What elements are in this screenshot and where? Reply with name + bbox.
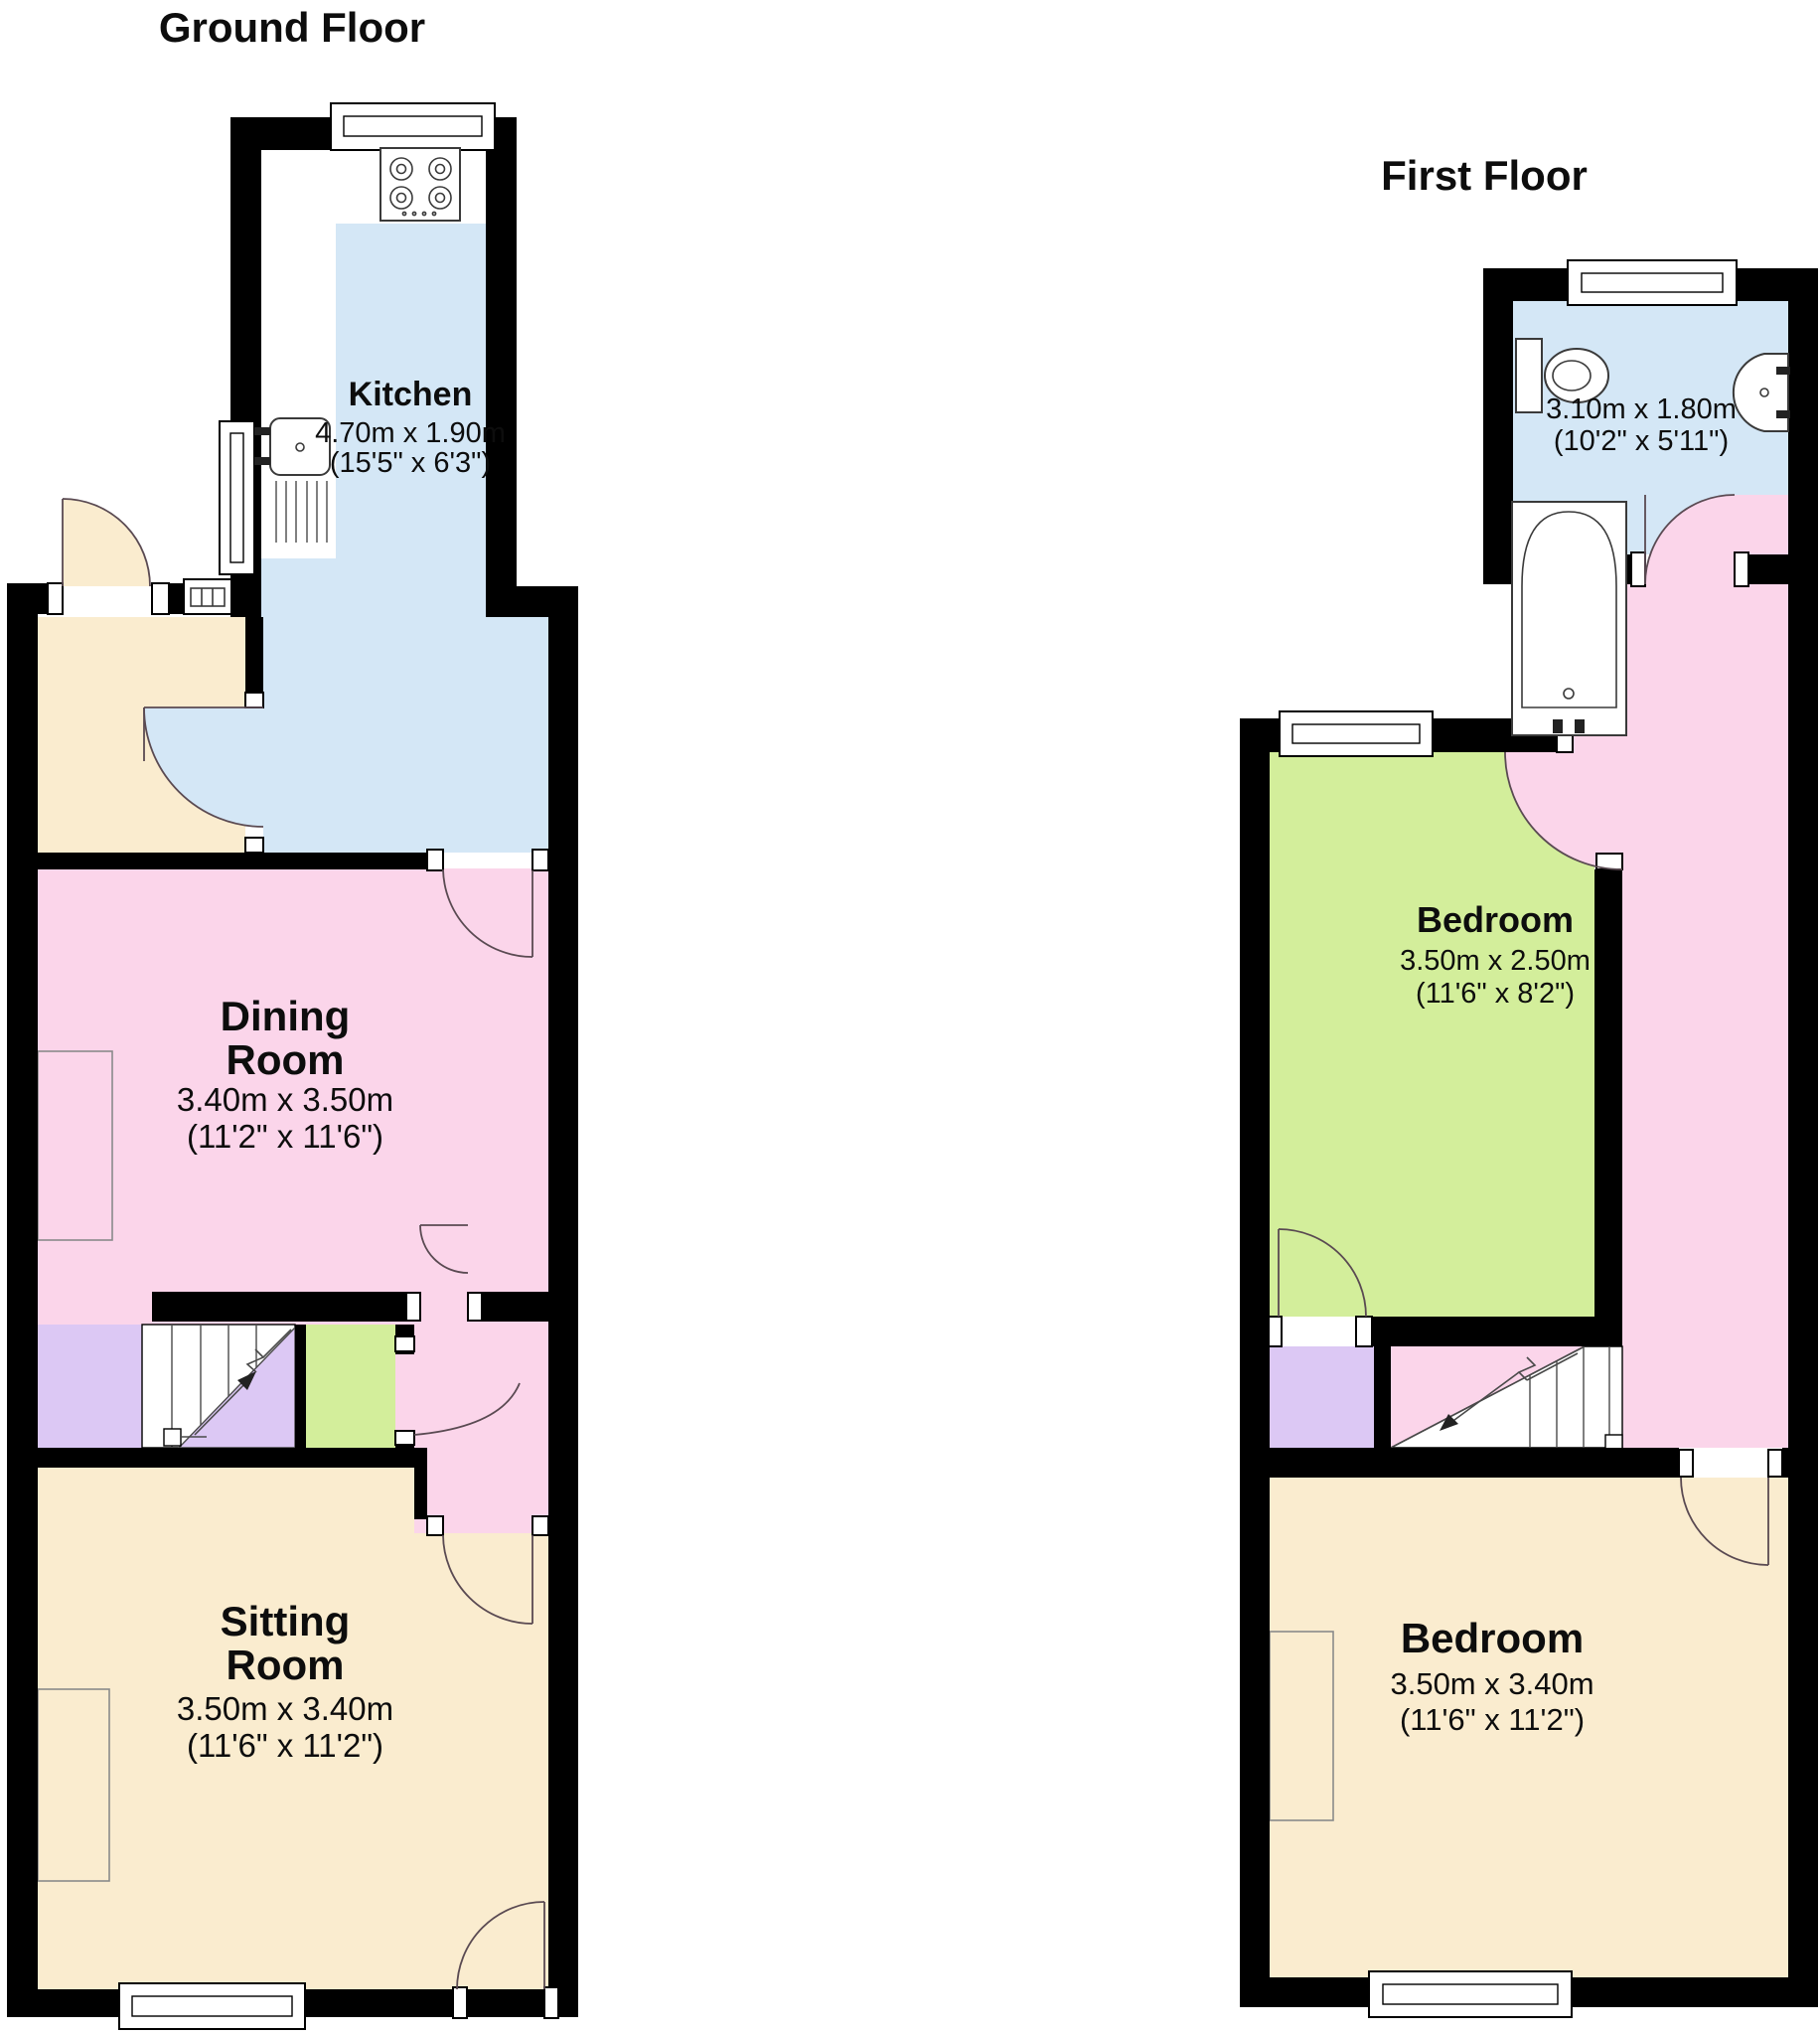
ground-floor-plan: Ground Floor Kitchen 4.70m x 1.90m (15'5… (7, 4, 578, 2029)
bathroom-label: 3.10m x 1.80m (10'2" x 5'11") (1546, 393, 1737, 457)
svg-text:(10'2" x 5'11"): (10'2" x 5'11") (1554, 425, 1729, 457)
landing-strip (1622, 752, 1788, 1448)
stairs-start-post (164, 1429, 181, 1446)
svg-text:(11'6" x 8'2"): (11'6" x 8'2") (1416, 978, 1575, 1010)
boiler-unit-icon (184, 579, 231, 614)
svg-text:(11'2" x 11'6"): (11'2" x 11'6") (187, 1118, 383, 1155)
kitchen-side-window (220, 421, 254, 574)
sitting-room-window (119, 1983, 305, 2029)
bedroom-front-label: Bedroom 3.50m x 3.40m (11'6" x 11'2") (1390, 1615, 1593, 1737)
svg-text:3.50m x 3.40m: 3.50m x 3.40m (177, 1690, 393, 1727)
first-floor-plan: First Floor 3.10m x 1.80m (10'2" x 5'11"… (1240, 152, 1818, 2017)
svg-text:Sitting: Sitting (221, 1598, 351, 1644)
svg-text:4.70m x 1.90m: 4.70m x 1.90m (315, 417, 506, 449)
first-floor-title: First Floor (1381, 152, 1588, 199)
svg-text:3.10m x 1.80m: 3.10m x 1.80m (1546, 393, 1737, 425)
stairs-ground (142, 1325, 295, 1448)
svg-text:Bedroom: Bedroom (1401, 1615, 1584, 1661)
floorplan-page: Ground Floor Kitchen 4.70m x 1.90m (15'5… (0, 0, 1820, 2035)
kitchen-rear-window (331, 103, 495, 150)
bedroom-rear-label: Bedroom 3.50m x 2.50m (11'6" x 8'2") (1400, 899, 1591, 1010)
drainer-icon (276, 481, 327, 543)
porch-door-swing (63, 499, 150, 586)
svg-text:Room: Room (227, 1036, 345, 1083)
floorplan-canvas: Ground Floor Kitchen 4.70m x 1.90m (15'5… (0, 0, 1820, 2035)
hob-icon (380, 148, 460, 221)
svg-text:(15'5" x 6'3"): (15'5" x 6'3") (330, 447, 491, 479)
stairs-lobby (38, 1325, 142, 1448)
svg-text:Dining: Dining (221, 993, 351, 1039)
svg-text:Bedroom: Bedroom (1417, 899, 1574, 940)
ground-floor-title: Ground Floor (159, 4, 425, 51)
svg-text:3.50m x 3.40m: 3.50m x 3.40m (1390, 1666, 1593, 1701)
bedroom-front-window (1369, 1971, 1572, 2017)
stairs-end-post (1605, 1435, 1622, 1450)
svg-text:Room: Room (227, 1642, 345, 1688)
airing-cupboard (1270, 1346, 1374, 1448)
bath-icon (1512, 502, 1626, 735)
bedroom-rear-window (1280, 711, 1433, 756)
svg-text:(11'6" x 11'2"): (11'6" x 11'2") (187, 1727, 383, 1764)
bathroom-window (1568, 260, 1737, 305)
svg-text:(11'6" x 11'2"): (11'6" x 11'2") (1400, 1702, 1585, 1737)
svg-text:3.50m x 2.50m: 3.50m x 2.50m (1400, 945, 1591, 977)
svg-text:Kitchen: Kitchen (349, 376, 473, 413)
svg-text:3.40m x 3.50m: 3.40m x 3.50m (177, 1081, 393, 1118)
understairs-cupboard (306, 1325, 395, 1448)
